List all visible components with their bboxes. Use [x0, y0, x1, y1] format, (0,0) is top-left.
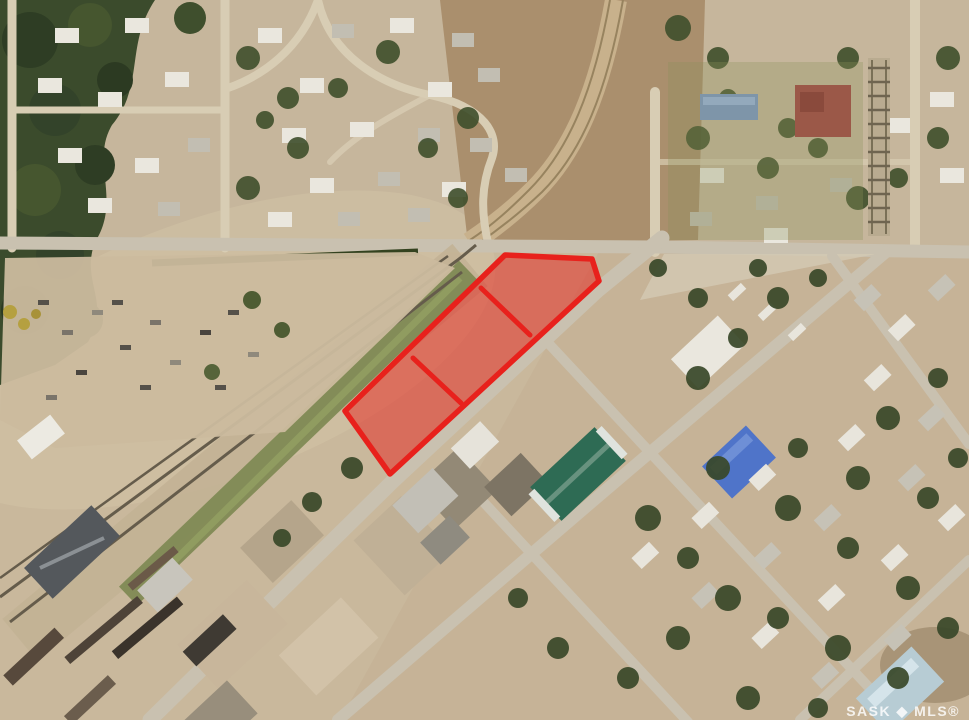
satellite-map-photo[interactable]: SASK ◆ MLS®: [0, 0, 969, 720]
sask-mls-watermark: SASK ◆ MLS®: [846, 703, 960, 719]
rail-spur-north: [868, 58, 890, 236]
